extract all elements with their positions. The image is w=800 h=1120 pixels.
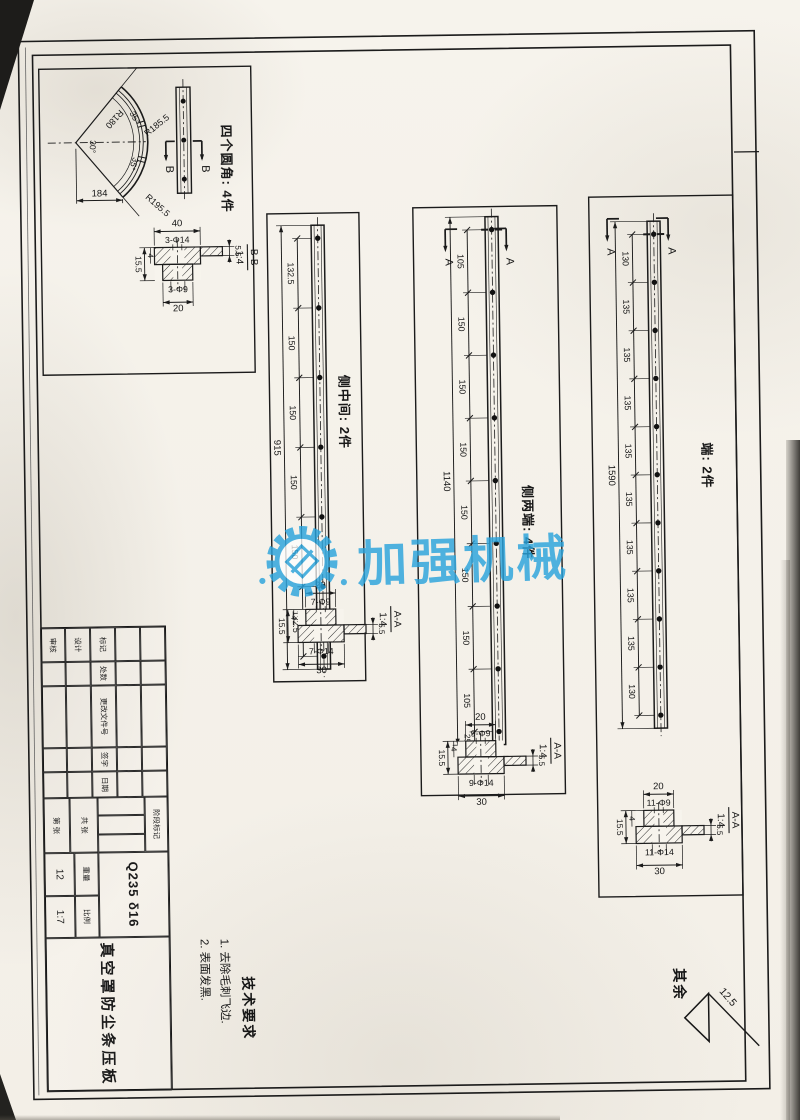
svg-text:130: 130: [627, 684, 637, 699]
svg-text:40: 40: [172, 218, 183, 229]
section-detail-b-b: 403-Φ143-Φ92015.545.51:4B-B: [133, 217, 260, 315]
tb-material: Q235 δ16: [98, 851, 169, 937]
tb-rev-cell: [117, 771, 142, 797]
tech-req-items: 1. 去除毛刺飞边.2. 表面发黑.: [193, 939, 235, 1080]
tb-rev-cell: [142, 770, 167, 796]
svg-text:135: 135: [623, 396, 633, 411]
svg-text:3-Φ14: 3-Φ14: [165, 235, 190, 245]
svg-text:135: 135: [621, 299, 631, 314]
svg-text:135: 135: [623, 444, 633, 459]
scan-artifact-corner: [0, 0, 34, 110]
tech-req-item-2: 2. 表面发黑.: [193, 939, 215, 1079]
svg-text:B: B: [199, 165, 211, 173]
surface-roughness-symbol: 12.5: [684, 985, 759, 1047]
drawing-sheet: R180R185.5R195.535°30°35°184BB403-Φ143-Φ…: [0, 0, 800, 1120]
svg-text:135: 135: [624, 492, 634, 507]
tb-stage-cell: [98, 833, 145, 852]
svg-text:A: A: [665, 247, 677, 255]
svg-text:150: 150: [457, 380, 467, 395]
tb-rev-header: 标记: [90, 627, 116, 661]
svg-text:135: 135: [622, 347, 632, 362]
tb-rev-cell: [141, 684, 167, 746]
surface-finish-note-label: 其余: [669, 968, 690, 1001]
tb-rev-cell: [41, 686, 67, 748]
section-detail-a-a: 2011-Φ911-Φ143015.545.51:4A-A: [614, 780, 741, 878]
tb-rev-cell: [42, 772, 67, 798]
svg-text:A: A: [443, 258, 455, 266]
svg-text:A: A: [504, 258, 516, 266]
svg-text:150: 150: [461, 630, 471, 645]
tb-scale-value: 1:7: [44, 895, 76, 938]
svg-text:35°: 35°: [127, 156, 141, 171]
svg-text:B-B: B-B: [248, 249, 259, 266]
svg-text:9-Φ9: 9-Φ9: [471, 728, 491, 738]
gear-diamond-logo-icon: [255, 516, 350, 609]
fan-arc-view: R180R185.5R195.535°30°35°184: [47, 67, 173, 220]
scan-artifact-edge: [780, 560, 790, 1120]
svg-text:1:4: 1:4: [233, 250, 244, 265]
tb-weight-label: 重量: [74, 853, 99, 896]
svg-text:1:4: 1:4: [537, 744, 548, 759]
tb-rev-cell: [65, 662, 90, 686]
fan-part-label: 四个圆角: 4件: [218, 124, 238, 212]
svg-text:1:4: 1:4: [715, 813, 726, 828]
svg-text:9-Φ14: 9-Φ14: [469, 778, 494, 788]
svg-text:15.5: 15.5: [133, 256, 143, 273]
svg-text:30: 30: [476, 797, 487, 808]
tb-stage-cell: [97, 797, 144, 816]
svg-text:150: 150: [288, 405, 298, 420]
svg-text:132.5: 132.5: [286, 262, 296, 284]
svg-text:135: 135: [625, 540, 635, 555]
svg-text:15.5: 15.5: [615, 819, 625, 836]
svg-text:R180: R180: [104, 108, 126, 131]
watermark: 加强机械: [255, 509, 571, 609]
tb-rev-cell: [116, 685, 142, 747]
tb-rev-cell: [115, 661, 140, 685]
svg-text:4: 4: [289, 615, 298, 620]
tb-part-name: 真空罩防尘条压板: [45, 936, 172, 1092]
svg-text:R185.5: R185.5: [142, 112, 171, 138]
scanned-blueprint: R180R185.5R195.535°30°35°184BB403-Φ143-Φ…: [0, 0, 800, 1120]
tb-rev-cell: [40, 662, 65, 686]
strip-1-label: 侧中间: 2件: [335, 375, 355, 449]
scan-artifact-corner: [0, 1074, 16, 1120]
svg-text:15.5: 15.5: [437, 750, 447, 767]
technical-requirements: 技术要求 1. 去除毛刺飞边.2. 表面发黑.: [193, 938, 259, 1079]
svg-text:20: 20: [475, 712, 486, 723]
tb-stage-label: 阶段标记: [144, 796, 168, 851]
title-block: 标记处数更改文件号签字日期设计审核阶段标记Q235 δ16共 张第 张重量12比…: [41, 625, 173, 1091]
tb-sheet-total: 共 张: [70, 798, 98, 853]
tech-req-title: 技术要求: [238, 938, 260, 1078]
tech-req-item-1: 1. 去除毛刺飞边.: [213, 939, 235, 1079]
svg-text:30°: 30°: [88, 140, 98, 153]
svg-text:B: B: [163, 166, 175, 174]
strip-3-label: 端: 2件: [698, 442, 718, 488]
strip-view-2: 105150150150150150150105251140AA: [437, 208, 523, 753]
tb-rev-header: 更改文件号: [91, 685, 117, 747]
tb-rev-header: 签字: [92, 747, 117, 771]
tb-scale-label: 比例: [75, 895, 100, 938]
svg-text:1:4: 1:4: [377, 612, 388, 627]
svg-text:150: 150: [287, 336, 297, 351]
svg-text:30: 30: [316, 665, 327, 676]
svg-text:105: 105: [462, 693, 472, 708]
svg-text:A: A: [604, 248, 616, 256]
tb-rev-cell: [117, 747, 142, 771]
tb-rev-cell: [66, 686, 92, 748]
svg-text:4: 4: [449, 747, 458, 752]
svg-text:20: 20: [653, 781, 664, 792]
tb-rev-cell: [42, 748, 67, 772]
svg-text:184: 184: [92, 188, 108, 199]
strip-view-3: 1301351351351351351351351351301590AA: [602, 213, 685, 737]
tb-rev-cell: [115, 627, 141, 661]
svg-text:A-A: A-A: [729, 812, 740, 829]
tb-signature-label: 审核: [40, 628, 66, 662]
svg-text:A-A: A-A: [551, 742, 562, 759]
tb-rev-cell: [140, 626, 166, 660]
tb-weight-value: 12: [43, 853, 75, 896]
svg-text:7-Φ14: 7-Φ14: [309, 646, 334, 656]
tb-signature-label: 设计: [65, 628, 91, 662]
tb-sheet-number: 第 张: [42, 798, 70, 853]
scan-artifact-edge: [0, 1115, 560, 1120]
svg-text:3-Φ9: 3-Φ9: [168, 284, 188, 294]
svg-text:150: 150: [456, 317, 466, 332]
fan-side-view: BB: [162, 79, 212, 202]
svg-text:130: 130: [620, 251, 630, 266]
svg-text:1140: 1140: [441, 471, 452, 492]
tb-rev-cell: [140, 660, 165, 684]
tb-rev-header: 处数: [90, 661, 115, 685]
svg-text:105: 105: [455, 254, 465, 269]
svg-text:A-A: A-A: [391, 611, 402, 628]
svg-text:15.5: 15.5: [277, 618, 287, 635]
tb-stage-cell: [98, 815, 145, 834]
tb-rev-cell: [67, 748, 92, 772]
svg-text:135: 135: [625, 588, 635, 603]
tb-rev-cell: [142, 746, 167, 770]
svg-text:20: 20: [173, 303, 184, 314]
svg-text:135: 135: [626, 636, 636, 651]
svg-text:R195.5: R195.5: [143, 192, 171, 219]
watermark-text: 加强机械: [356, 518, 570, 597]
svg-text:30: 30: [654, 866, 665, 877]
svg-text:915: 915: [271, 440, 282, 456]
tb-rev-cell: [67, 772, 92, 798]
svg-text:11-Φ14: 11-Φ14: [645, 847, 674, 857]
svg-text:4: 4: [627, 816, 636, 821]
svg-text:150: 150: [289, 475, 299, 490]
svg-text:150: 150: [458, 442, 468, 457]
tb-rev-header: 日期: [92, 771, 117, 797]
svg-text:1590: 1590: [606, 465, 617, 486]
svg-text:11-Φ9: 11-Φ9: [647, 798, 671, 808]
svg-text:4: 4: [146, 253, 155, 258]
